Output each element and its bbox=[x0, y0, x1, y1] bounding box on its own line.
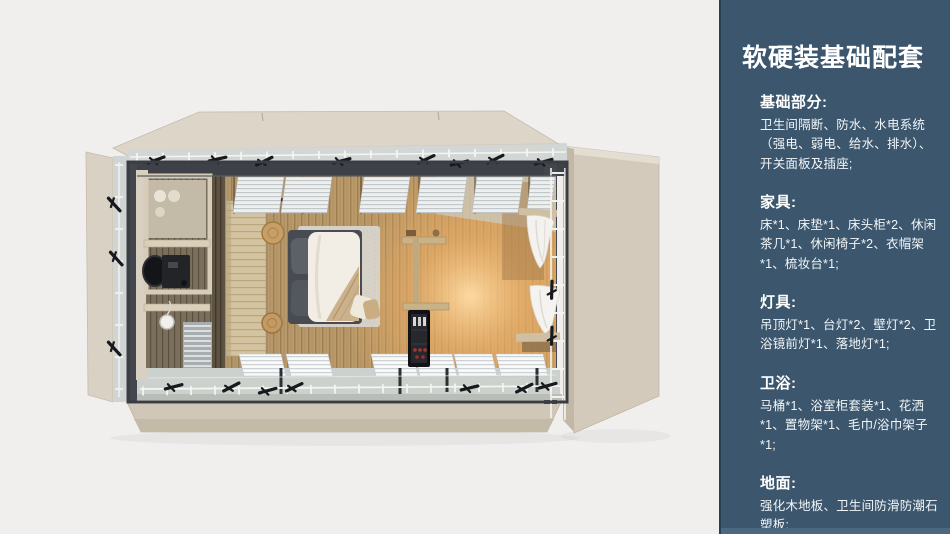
spec-body-basics: 卫生间隔断、防水、水电系统（强电、弱电、给水、排水）、开关面板及插座; bbox=[760, 116, 938, 174]
spec-body-lighting: 吊顶灯*1、台灯*2、壁灯*2、卫浴镜前灯*1、落地灯*1; bbox=[760, 316, 938, 355]
spec-heading-basics: 基础部分: bbox=[760, 91, 938, 112]
spec-section-bathroom: 卫浴: 马桶*1、浴室柜套装*1、花洒*1、置物架*1、毛巾/浴巾架子*1; bbox=[760, 372, 938, 455]
bathroom bbox=[143, 176, 225, 368]
floorplan-svg bbox=[0, 0, 719, 534]
right-wall-panel bbox=[563, 146, 659, 433]
bathroom-shelf bbox=[144, 240, 210, 247]
spec-heading-bathroom: 卫浴: bbox=[760, 372, 938, 393]
panel-footer-strip bbox=[721, 528, 950, 534]
spec-section-flooring: 地面: 强化木地板、卫生间防滑防潮石塑板; bbox=[760, 472, 938, 534]
towel-radiator bbox=[183, 322, 212, 368]
spec-heading-lighting: 灯具: bbox=[760, 291, 938, 312]
spec-section-basics: 基础部分: 卫生间隔断、防水、水电系统（强电、弱电、给水、排水）、开关面板及插座… bbox=[760, 91, 938, 174]
minibar bbox=[408, 310, 430, 367]
toilet bbox=[160, 315, 174, 329]
spec-body-bathroom: 马桶*1、浴室柜套装*1、花洒*1、置物架*1、毛巾/浴巾架子*1; bbox=[760, 397, 938, 455]
spec-panel: 软硬装基础配套 基础部分: 卫生间隔断、防水、水电系统（强电、弱电、给水、排水）… bbox=[719, 0, 950, 534]
bathroom-shelf bbox=[144, 304, 210, 311]
slide: 软硬装基础配套 基础部分: 卫生间隔断、防水、水电系统（强电、弱电、给水、排水）… bbox=[0, 0, 950, 534]
wardrobe-panel bbox=[226, 201, 266, 356]
spec-heading-furniture: 家具: bbox=[760, 191, 938, 212]
panel-title: 软硬装基础配套 bbox=[742, 44, 940, 73]
partition-wall bbox=[212, 176, 225, 368]
spec-heading-flooring: 地面: bbox=[760, 472, 938, 493]
floorplan-render-area bbox=[0, 0, 719, 534]
bed bbox=[288, 226, 381, 327]
spec-section-furniture: 家具: 床*1、床垫*1、床头柜*2、休闲茶几*1、休闲椅子*2、衣帽架*1、梳… bbox=[760, 191, 938, 274]
spec-body-furniture: 床*1、床垫*1、床头柜*2、休闲茶几*1、休闲椅子*2、衣帽架*1、梳妆台*1… bbox=[760, 216, 938, 274]
spec-section-lighting: 灯具: 吊顶灯*1、台灯*2、壁灯*2、卫浴镜前灯*1、落地灯*1; bbox=[760, 291, 938, 355]
left-flap bbox=[86, 152, 113, 402]
